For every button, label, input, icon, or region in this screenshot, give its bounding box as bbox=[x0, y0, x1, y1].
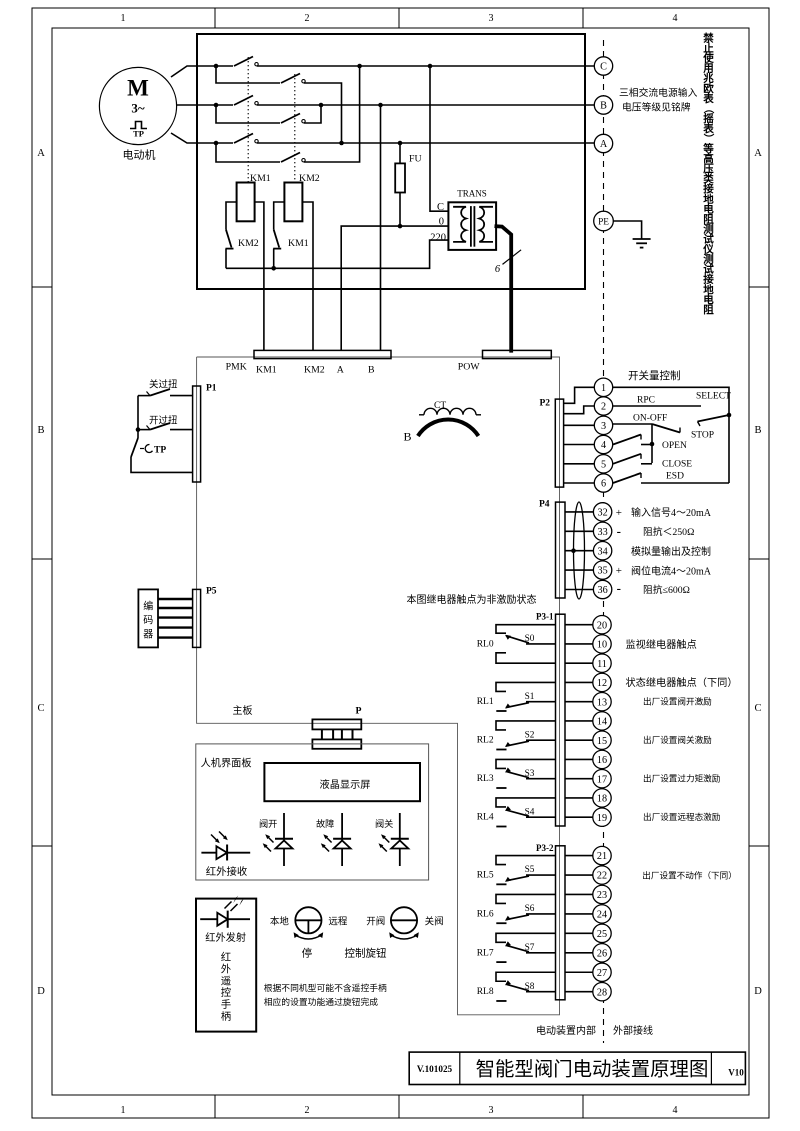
svg-text:RL6: RL6 bbox=[477, 909, 494, 919]
svg-text:主板: 主板 bbox=[233, 704, 253, 717]
svg-text:）: ） bbox=[702, 133, 715, 144]
svg-text:人机界面板: 人机界面板 bbox=[201, 757, 252, 770]
svg-text:3: 3 bbox=[489, 13, 494, 24]
svg-text:P5: P5 bbox=[206, 587, 217, 597]
svg-text:S7: S7 bbox=[525, 943, 535, 953]
svg-text:电动机: 电动机 bbox=[123, 148, 156, 162]
svg-text:3~: 3~ bbox=[131, 101, 145, 116]
svg-text:相应的设置功能通过旋钮完成: 相应的设置功能通过旋钮完成 bbox=[264, 996, 379, 1007]
svg-text:红外发射: 红外发射 bbox=[205, 931, 246, 944]
svg-text:TP: TP bbox=[133, 129, 144, 139]
svg-text:TRANS: TRANS bbox=[457, 189, 487, 199]
svg-text:16: 16 bbox=[597, 755, 607, 766]
svg-text:3: 3 bbox=[489, 1105, 494, 1116]
svg-text:输入信号4～20mA: 输入信号4～20mA bbox=[631, 506, 712, 519]
svg-text:1: 1 bbox=[601, 383, 606, 394]
svg-text:20: 20 bbox=[597, 620, 607, 631]
svg-text:阀位电流4～20mA: 阀位电流4～20mA bbox=[631, 565, 712, 578]
svg-text:RL7: RL7 bbox=[477, 948, 494, 958]
svg-text:RL2: RL2 bbox=[477, 736, 494, 746]
svg-text:-: - bbox=[617, 523, 621, 538]
svg-text:关阀: 关阀 bbox=[425, 916, 444, 928]
svg-text:开阀: 开阀 bbox=[366, 916, 385, 928]
svg-text:6: 6 bbox=[495, 264, 501, 275]
svg-text:+: + bbox=[616, 507, 622, 519]
svg-text:ON-OFF: ON-OFF bbox=[633, 414, 667, 424]
svg-text:阻: 阻 bbox=[703, 304, 714, 316]
svg-text:手: 手 bbox=[221, 998, 231, 1011]
svg-text:12: 12 bbox=[597, 678, 607, 689]
svg-text:关过扭: 关过扭 bbox=[149, 379, 178, 391]
svg-text:电: 电 bbox=[703, 293, 714, 306]
svg-text:控: 控 bbox=[221, 986, 232, 999]
svg-text:RL1: RL1 bbox=[477, 697, 494, 707]
svg-text:状态继电器触点（下同）: 状态继电器触点（下同） bbox=[626, 676, 738, 689]
svg-text:RL4: RL4 bbox=[477, 813, 494, 823]
svg-text:6: 6 bbox=[601, 479, 606, 490]
svg-text:试: 试 bbox=[703, 233, 714, 246]
svg-text:电压等级见铭牌: 电压等级见铭牌 bbox=[622, 101, 691, 114]
svg-text:RL3: RL3 bbox=[477, 774, 494, 784]
svg-text:P2: P2 bbox=[540, 399, 551, 409]
svg-text:编: 编 bbox=[143, 600, 153, 613]
svg-text:根据不同机型可能不含遥控手柄: 根据不同机型可能不含遥控手柄 bbox=[264, 982, 387, 993]
svg-text:B: B bbox=[368, 365, 375, 376]
svg-text:C: C bbox=[600, 62, 607, 73]
svg-text:4: 4 bbox=[601, 440, 606, 451]
svg-text:S3: S3 bbox=[525, 769, 535, 779]
svg-text:33: 33 bbox=[598, 527, 608, 538]
svg-text:止: 止 bbox=[703, 42, 714, 55]
svg-text:FU: FU bbox=[409, 154, 422, 165]
svg-text:B: B bbox=[600, 101, 607, 112]
svg-text:TP: TP bbox=[154, 446, 166, 456]
svg-text:RL0: RL0 bbox=[477, 639, 494, 649]
svg-text:23: 23 bbox=[597, 890, 607, 901]
svg-text:14: 14 bbox=[597, 717, 607, 728]
svg-text:监视继电器触点: 监视继电器触点 bbox=[626, 638, 697, 651]
svg-text:控制旋钮: 控制旋钮 bbox=[345, 947, 387, 960]
svg-text:KM1: KM1 bbox=[288, 238, 309, 249]
svg-text:B: B bbox=[403, 430, 411, 444]
svg-text:出厂设置过力矩激励: 出厂设置过力矩激励 bbox=[643, 773, 720, 784]
svg-text:（: （ bbox=[702, 103, 715, 114]
svg-text:21: 21 bbox=[597, 851, 607, 862]
svg-text:S8: S8 bbox=[525, 982, 535, 992]
svg-text:开关量控制: 开关量控制 bbox=[628, 369, 681, 382]
svg-text:POW: POW bbox=[458, 362, 481, 373]
svg-text:2: 2 bbox=[305, 13, 310, 24]
svg-text:阀开: 阀开 bbox=[259, 819, 277, 829]
svg-text:17: 17 bbox=[597, 774, 607, 785]
svg-text:遥: 遥 bbox=[221, 974, 231, 987]
svg-text:阻抗＜250Ω: 阻抗＜250Ω bbox=[643, 525, 694, 538]
svg-text:RL8: RL8 bbox=[477, 987, 494, 997]
svg-text:RPC: RPC bbox=[637, 396, 655, 406]
svg-text:19: 19 bbox=[597, 813, 607, 824]
svg-text:B: B bbox=[37, 425, 44, 436]
svg-text:S1: S1 bbox=[525, 692, 535, 702]
svg-text:2: 2 bbox=[305, 1105, 310, 1116]
svg-text:0: 0 bbox=[439, 217, 444, 228]
svg-text:S5: S5 bbox=[525, 865, 535, 875]
svg-text:KM2: KM2 bbox=[304, 365, 325, 376]
svg-text:D: D bbox=[754, 986, 762, 997]
svg-text:A: A bbox=[37, 148, 45, 159]
svg-text:S2: S2 bbox=[525, 730, 535, 740]
svg-text:SELECT: SELECT bbox=[696, 392, 731, 402]
svg-text:18: 18 bbox=[597, 794, 607, 805]
svg-text:PMK: PMK bbox=[226, 362, 247, 373]
svg-text:26: 26 bbox=[597, 948, 607, 959]
svg-text:智能型阀门电动装置原理图: 智能型阀门电动装置原理图 bbox=[476, 1059, 709, 1081]
svg-text:高: 高 bbox=[703, 152, 714, 165]
svg-text:使: 使 bbox=[702, 52, 714, 65]
svg-text:电动装置内部: 电动装置内部 bbox=[536, 1024, 596, 1037]
svg-text:S4: S4 bbox=[525, 807, 535, 817]
svg-text:OPEN: OPEN bbox=[662, 441, 687, 451]
svg-text:32: 32 bbox=[598, 508, 608, 519]
svg-text:停: 停 bbox=[302, 947, 313, 960]
svg-text:PE: PE bbox=[598, 218, 609, 228]
svg-text:35: 35 bbox=[598, 566, 608, 577]
svg-text:P4: P4 bbox=[539, 500, 550, 510]
svg-text:A: A bbox=[337, 365, 344, 376]
svg-text:外: 外 bbox=[221, 963, 232, 975]
svg-text:C: C bbox=[754, 703, 761, 714]
svg-text:远程: 远程 bbox=[328, 917, 348, 928]
svg-text:3: 3 bbox=[601, 421, 606, 432]
svg-text:P: P bbox=[356, 706, 362, 717]
svg-text:CLOSE: CLOSE bbox=[662, 460, 692, 470]
svg-text:出厂设置阀开激励: 出厂设置阀开激励 bbox=[643, 696, 712, 707]
svg-text:34: 34 bbox=[598, 546, 608, 557]
svg-text:4: 4 bbox=[673, 1105, 678, 1116]
svg-text:KM1: KM1 bbox=[256, 365, 277, 376]
svg-text:本图继电器触点为非激励状态: 本图继电器触点为非激励状态 bbox=[407, 593, 537, 606]
svg-text:36: 36 bbox=[598, 585, 608, 596]
svg-text:22: 22 bbox=[597, 871, 607, 882]
svg-text:液晶显示屏: 液晶显示屏 bbox=[320, 778, 371, 791]
svg-text:D: D bbox=[37, 986, 45, 997]
svg-text:C: C bbox=[437, 202, 444, 213]
svg-text:27: 27 bbox=[597, 968, 607, 979]
svg-text:11: 11 bbox=[597, 659, 607, 670]
svg-text:-: - bbox=[617, 581, 621, 596]
svg-text:P3-2: P3-2 bbox=[536, 843, 554, 853]
svg-text:接: 接 bbox=[703, 273, 714, 286]
svg-text:ESD: ESD bbox=[666, 472, 684, 482]
svg-text:B: B bbox=[754, 425, 761, 436]
svg-text:13: 13 bbox=[597, 697, 607, 708]
svg-text:STOP: STOP bbox=[691, 431, 714, 441]
svg-text:器: 器 bbox=[143, 629, 153, 641]
svg-text:1: 1 bbox=[121, 13, 126, 24]
svg-text:兆: 兆 bbox=[703, 72, 714, 85]
svg-text:220: 220 bbox=[430, 233, 446, 244]
svg-text:2: 2 bbox=[601, 402, 606, 413]
svg-text:柄: 柄 bbox=[221, 1010, 231, 1023]
svg-text:故障: 故障 bbox=[316, 818, 334, 829]
svg-text:A: A bbox=[754, 148, 762, 159]
svg-text:4: 4 bbox=[673, 13, 678, 24]
svg-text:接: 接 bbox=[703, 182, 714, 195]
svg-text:模拟量输出及控制: 模拟量输出及控制 bbox=[631, 545, 711, 558]
svg-text:P1: P1 bbox=[206, 384, 217, 394]
svg-text:25: 25 bbox=[597, 929, 607, 940]
svg-text:红外接收: 红外接收 bbox=[206, 865, 248, 878]
svg-text:出厂设置阀关激励: 出厂设置阀关激励 bbox=[643, 734, 712, 745]
svg-text:S6: S6 bbox=[525, 904, 535, 914]
svg-text:1: 1 bbox=[121, 1105, 126, 1116]
svg-text:三相交流电源输入: 三相交流电源输入 bbox=[619, 86, 698, 99]
svg-text:KM2: KM2 bbox=[238, 238, 259, 249]
svg-text:地: 地 bbox=[703, 192, 714, 205]
svg-text:24: 24 bbox=[597, 910, 607, 921]
svg-text:V10: V10 bbox=[728, 1068, 744, 1078]
svg-text:阻抗≤600Ω: 阻抗≤600Ω bbox=[643, 583, 690, 596]
svg-text:试: 试 bbox=[703, 263, 714, 276]
svg-text:5: 5 bbox=[601, 459, 606, 470]
svg-text:本地: 本地 bbox=[270, 916, 290, 928]
svg-text:红: 红 bbox=[221, 951, 231, 964]
svg-text:S0: S0 bbox=[525, 634, 535, 644]
svg-text:RL5: RL5 bbox=[477, 871, 494, 881]
svg-text:C: C bbox=[37, 703, 44, 714]
svg-text:V.101025: V.101025 bbox=[417, 1064, 453, 1074]
svg-text:出厂设置远程态激励: 出厂设置远程态激励 bbox=[643, 811, 720, 822]
svg-text:P3-1: P3-1 bbox=[536, 612, 554, 622]
svg-text:28: 28 bbox=[597, 987, 607, 998]
svg-text:+: + bbox=[616, 565, 622, 577]
svg-text:码: 码 bbox=[143, 615, 153, 627]
svg-text:出厂设置不动作（下同）: 出厂设置不动作（下同） bbox=[642, 870, 737, 881]
svg-text:阀关: 阀关 bbox=[375, 818, 393, 829]
svg-text:M: M bbox=[127, 76, 149, 101]
svg-text:15: 15 bbox=[597, 736, 607, 747]
svg-text:10: 10 bbox=[597, 640, 607, 651]
svg-text:A: A bbox=[600, 139, 608, 150]
svg-text:外部接线: 外部接线 bbox=[613, 1024, 653, 1037]
